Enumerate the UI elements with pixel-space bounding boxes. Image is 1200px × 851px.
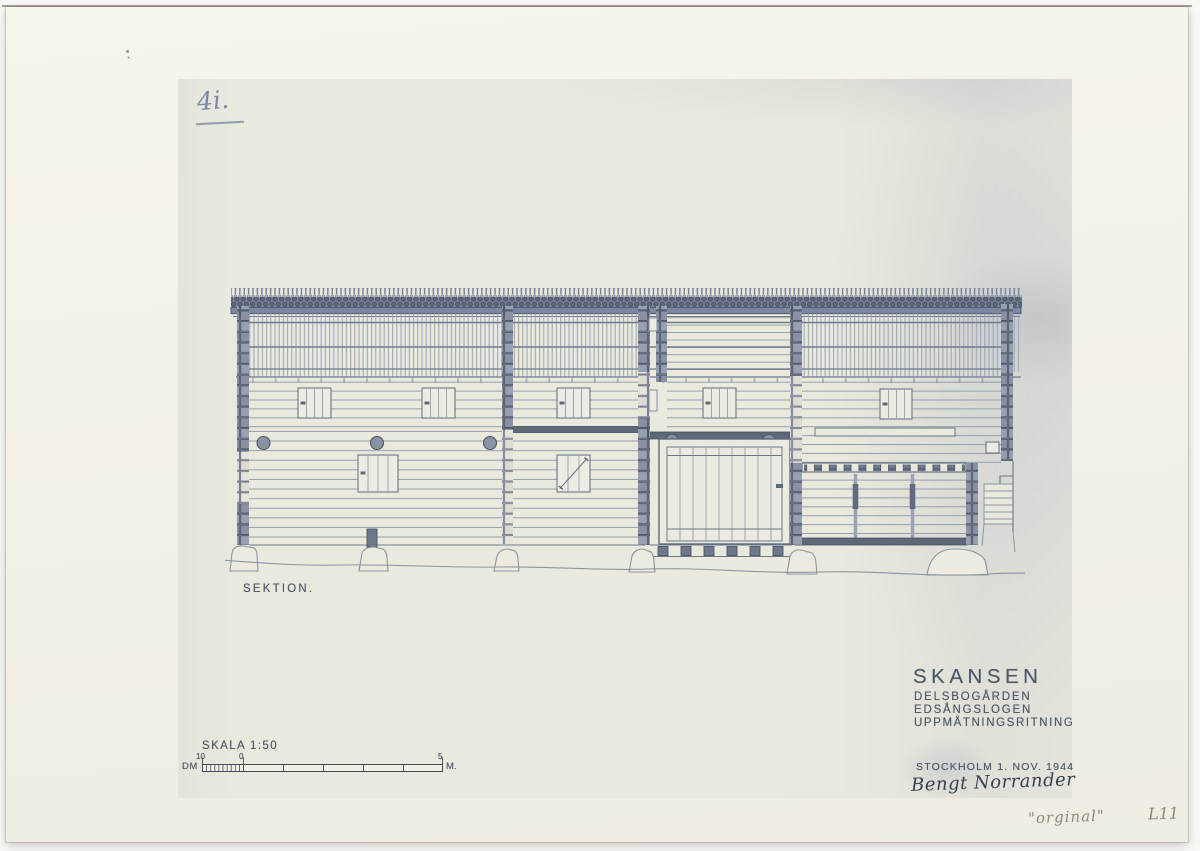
title-block-title: SKANSEN [913, 665, 1042, 689]
upper-boarding [236, 314, 1021, 381]
pencil-note-code: L11 [1148, 803, 1180, 823]
door-sill-joists [650, 545, 792, 557]
loft-hatch [880, 389, 912, 419]
loft-hatch [298, 388, 331, 418]
drawing-caption: SEKTION. [243, 583, 314, 595]
title-block-subtitle-2: EDSÅNGSLOGEN [914, 704, 1032, 716]
braced-hatch [557, 455, 590, 492]
loft-hatch [557, 388, 590, 418]
loft-floor-edge [815, 428, 955, 436]
pencil-speck [126, 50, 129, 53]
roof-edge [231, 288, 1022, 317]
scale-label: SKALA 1:50 [202, 740, 278, 752]
photographed-drawing-sheet: 4i. [0, 0, 1200, 851]
ground-line [225, 559, 1025, 575]
loft-hatch [703, 388, 736, 418]
wall-hatch [358, 455, 398, 492]
scale-bar [195, 754, 457, 776]
pencil-note-orginal: "orginal" [1028, 807, 1105, 828]
section-drawing [225, 283, 1025, 583]
barn-door [648, 432, 790, 544]
title-block-subtitle-1: DELSBOGÅRDEN [914, 691, 1031, 703]
loft-hatch [422, 388, 455, 418]
title-block-subtitle-3: UPPMÅTNINGSRITNING [914, 717, 1074, 729]
annex-shed [795, 463, 967, 545]
archive-annotation: 4i. [196, 85, 230, 117]
